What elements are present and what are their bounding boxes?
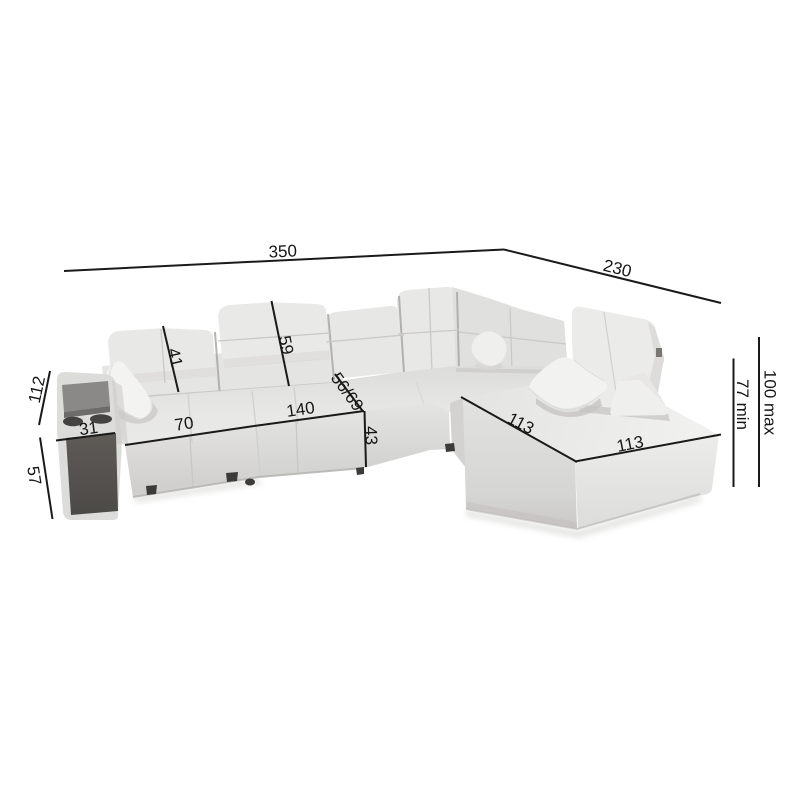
svg-text:31: 31 bbox=[78, 418, 99, 439]
svg-text:57: 57 bbox=[23, 465, 45, 487]
svg-text:59: 59 bbox=[275, 334, 297, 356]
svg-text:350: 350 bbox=[268, 241, 297, 261]
svg-text:70: 70 bbox=[173, 413, 195, 435]
svg-text:77 min: 77 min bbox=[733, 379, 752, 430]
svg-text:140: 140 bbox=[285, 398, 316, 421]
svg-text:43: 43 bbox=[361, 426, 381, 446]
svg-text:100 max: 100 max bbox=[761, 370, 780, 436]
